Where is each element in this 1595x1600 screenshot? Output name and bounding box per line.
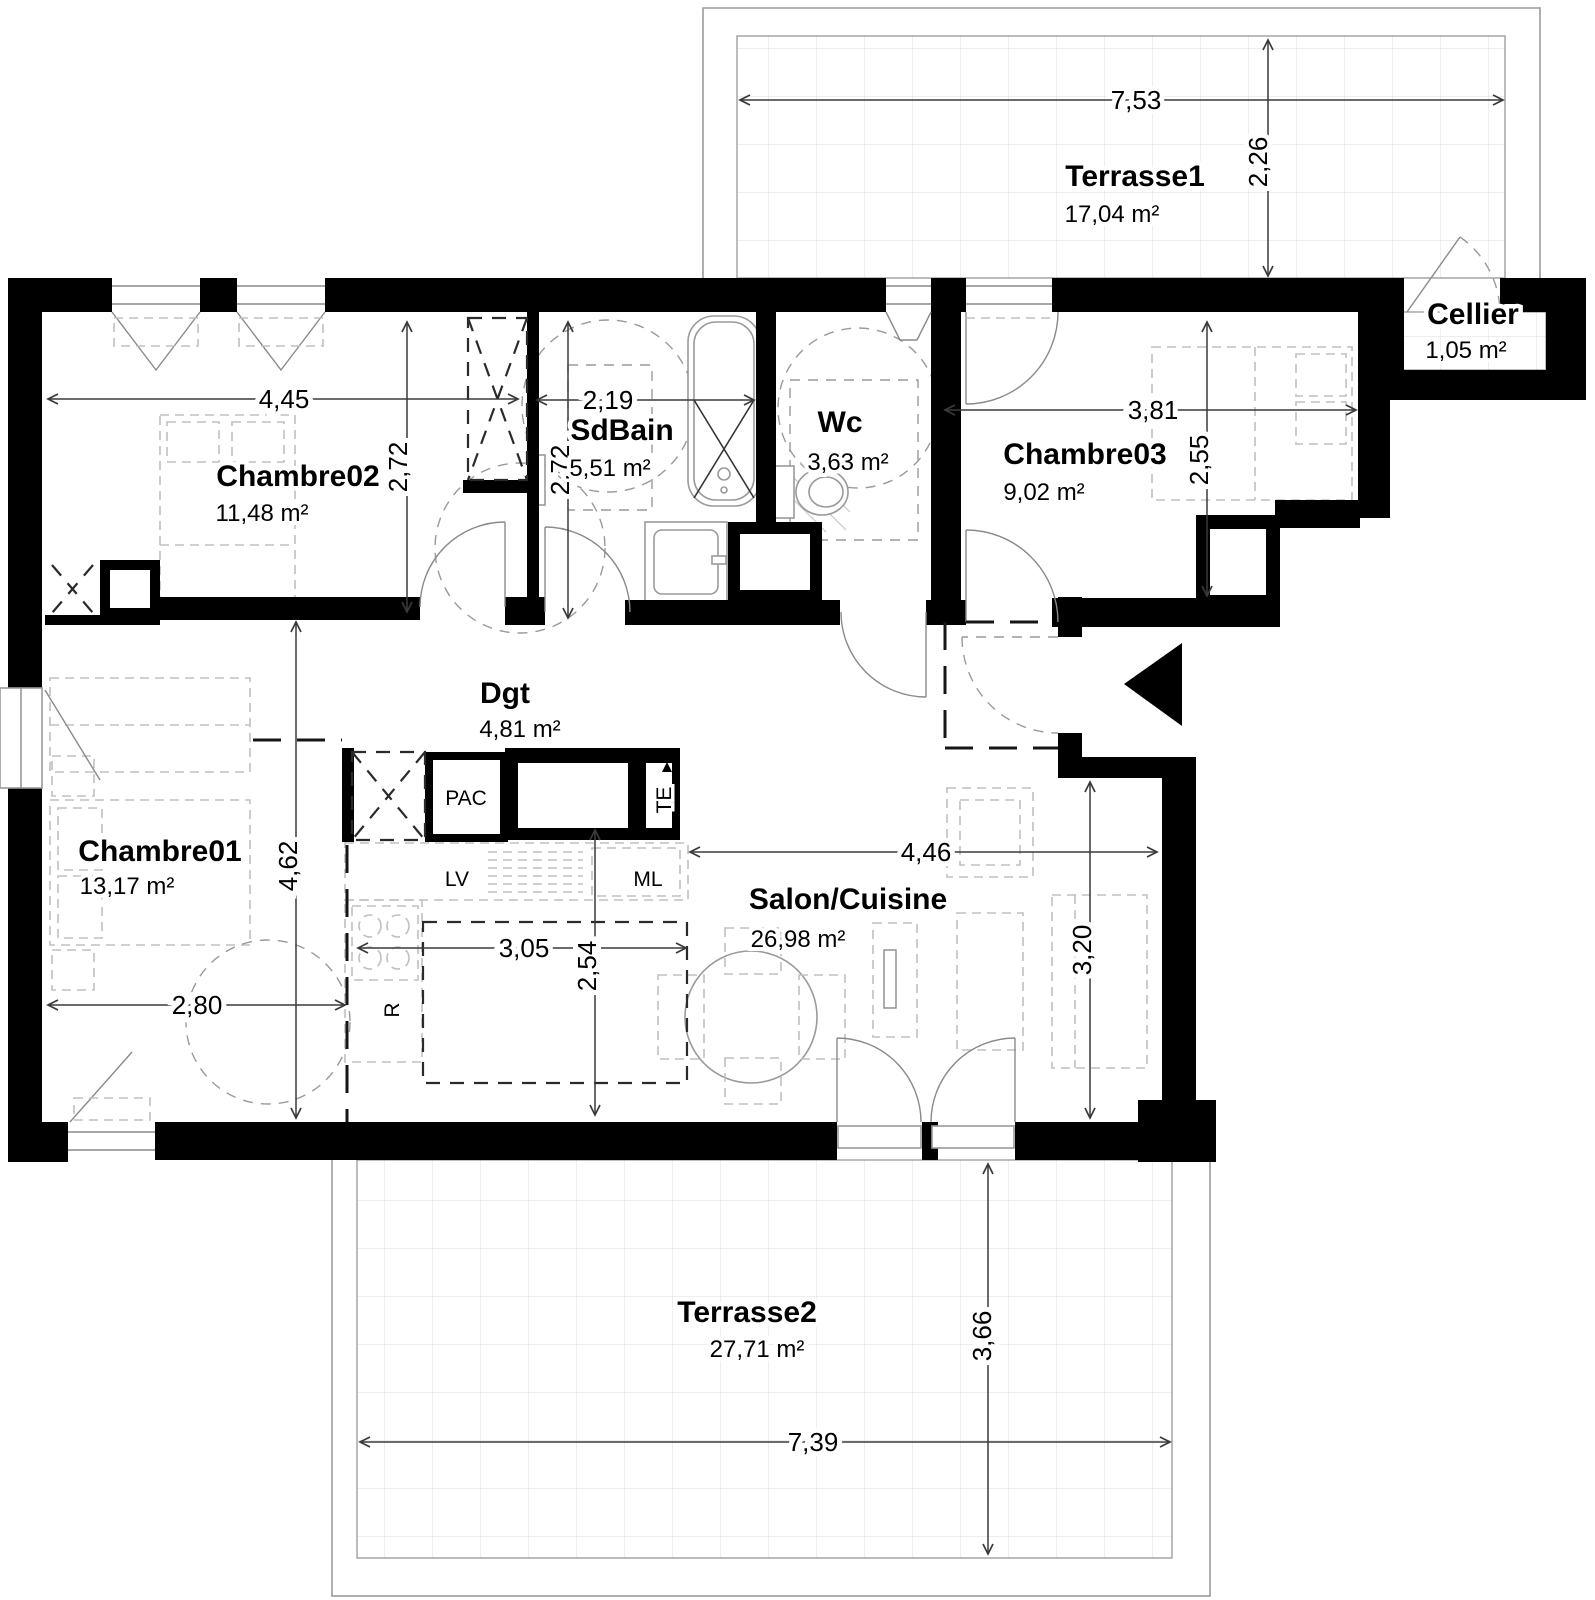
room-area-cellier: 1,05 m² xyxy=(1425,337,1506,364)
kitchen-zone xyxy=(423,922,687,1083)
sofa xyxy=(957,913,1023,1050)
dim-terrasse1-depth: 2,26 xyxy=(1243,137,1273,188)
dim-cuisine-depth: 2,54 xyxy=(572,941,602,992)
door-wc xyxy=(841,612,926,697)
sink-icon xyxy=(645,522,727,602)
dining-table xyxy=(685,951,817,1083)
room-label-terrasse2: Terrasse2 xyxy=(677,1296,817,1329)
terrasse1-zone xyxy=(703,8,1540,278)
room-area-chambre02: 11,48 m² xyxy=(216,500,309,527)
room-label-terrasse1: Terrasse1 xyxy=(1065,160,1205,193)
entrance-arrow-icon xyxy=(1124,643,1182,726)
room-label-cellier: Cellier xyxy=(1427,298,1519,331)
dim-terrasse2-depth: 3,66 xyxy=(967,1311,997,1362)
kitchen-counter xyxy=(345,900,422,1062)
dim-chambre03-depth: 2,55 xyxy=(1184,435,1214,486)
room-area-salon-cuisine: 26,98 m² xyxy=(751,926,846,953)
room-area-terrasse2: 27,71 m² xyxy=(710,1336,805,1363)
cooktop xyxy=(352,906,418,980)
dim-chambre01-width: 2,80 xyxy=(172,990,223,1020)
room-label-chambre01: Chambre01 xyxy=(78,835,241,868)
tv-console xyxy=(873,923,917,1037)
dim-terrasse2-width: 7,39 xyxy=(788,1427,839,1457)
floor-plan-drawing: 7,53 2,26 4,45 2,72 2,19 2,72 3,81 2,55 … xyxy=(0,0,1595,1600)
room-area-wc: 3,63 m² xyxy=(807,449,888,476)
dim-terrasse1-width: 7,53 xyxy=(1111,85,1162,115)
lv-label: LV xyxy=(445,868,469,891)
room-area-dgt: 4,81 m² xyxy=(479,716,560,743)
room-label-dgt: Dgt xyxy=(480,677,530,710)
room-area-chambre01: 13,17 m² xyxy=(80,873,175,900)
door xyxy=(966,286,1058,404)
te-label: TE xyxy=(653,787,676,814)
door-chambre03 xyxy=(966,530,1058,622)
room-label-wc: Wc xyxy=(818,406,863,439)
room-label-sdbain: SdBain xyxy=(570,414,673,447)
room-label-chambre02: Chambre02 xyxy=(216,460,379,493)
fridge-label: R xyxy=(381,1002,404,1017)
bed-chambre03 xyxy=(1152,347,1352,500)
dim-salon-width: 4,46 xyxy=(901,837,952,867)
room-area-sdbain: 5,51 m² xyxy=(569,455,650,482)
dim-chambre01-depth: 4,62 xyxy=(273,841,303,892)
room-label-salon-cuisine: Salon/Cuisine xyxy=(749,883,947,916)
chair xyxy=(658,975,704,1059)
dim-cuisine-width: 3,05 xyxy=(499,933,550,963)
dim-chambre02-depth: 2,72 xyxy=(383,442,413,493)
chair xyxy=(799,975,845,1059)
room-area-terrasse1: 17,04 m² xyxy=(1065,201,1160,228)
room-label-chambre03: Chambre03 xyxy=(1003,438,1166,471)
dim-salon-depth: 3,20 xyxy=(1067,925,1097,976)
dim-sdbain-width: 2,19 xyxy=(583,385,634,415)
window xyxy=(68,1052,155,1150)
dim-chambre02-width: 4,45 xyxy=(259,384,310,414)
window xyxy=(237,286,325,370)
door-chambre02 xyxy=(420,522,505,607)
ml-label: ML xyxy=(633,868,662,891)
window xyxy=(886,286,931,340)
room-area-chambre03: 9,02 m² xyxy=(1003,479,1084,506)
dim-chambre03-width: 3,81 xyxy=(1128,395,1179,425)
window xyxy=(112,286,200,370)
bathtub-icon xyxy=(688,316,760,506)
sofa xyxy=(1052,895,1147,1068)
terrasse2-zone xyxy=(332,1130,1210,1596)
floor-plan: 7,53 2,26 4,45 2,72 2,19 2,72 3,81 2,55 … xyxy=(0,0,1595,1600)
entry-door xyxy=(962,637,1058,733)
pac-label: PAC xyxy=(445,787,487,810)
